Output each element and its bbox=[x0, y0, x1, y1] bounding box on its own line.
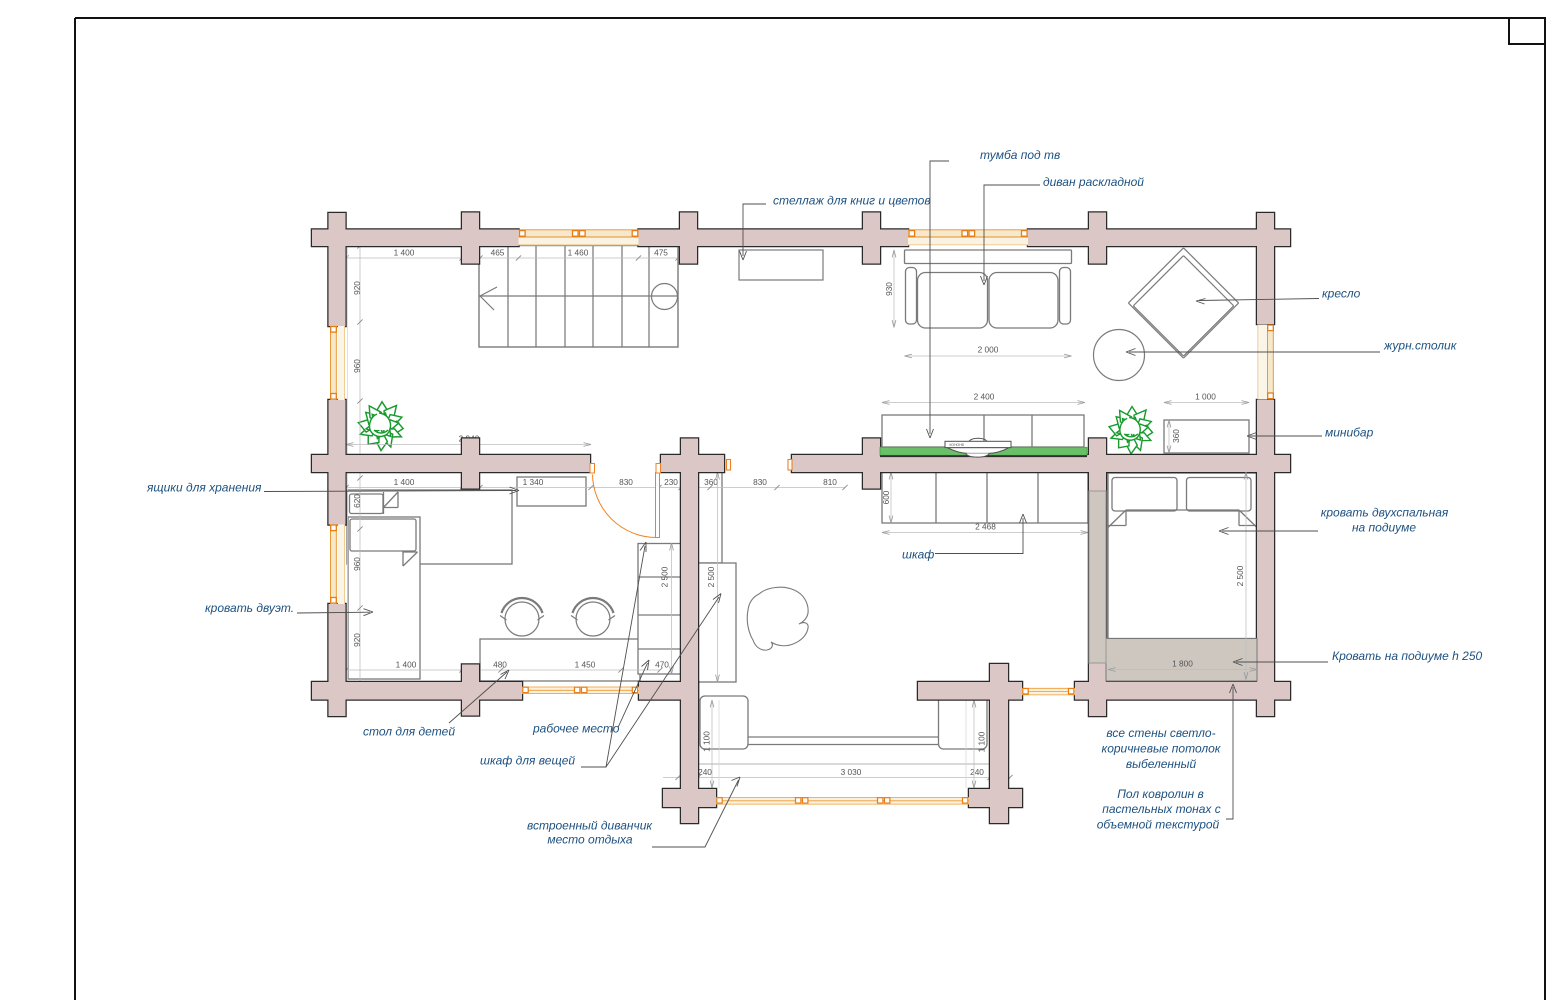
svg-text:830: 830 bbox=[753, 477, 767, 487]
svg-text:1 460: 1 460 bbox=[568, 248, 589, 258]
svg-text:2 000: 2 000 bbox=[978, 345, 999, 355]
svg-text:Кровать на подиуме h 250: Кровать на подиуме h 250 bbox=[1332, 649, 1483, 663]
svg-text:1 000: 1 000 bbox=[1195, 392, 1216, 402]
svg-text:360: 360 bbox=[1171, 429, 1181, 443]
svg-text:920: 920 bbox=[352, 633, 362, 647]
svg-text:шкаф: шкаф bbox=[902, 548, 934, 562]
svg-text:230: 230 bbox=[664, 477, 678, 487]
svg-text:Пол ковролин в: Пол ковролин в bbox=[1117, 787, 1204, 801]
svg-text:240: 240 bbox=[970, 767, 984, 777]
svg-text:920: 920 bbox=[352, 281, 362, 295]
svg-text:1 400: 1 400 bbox=[394, 248, 415, 258]
svg-text:465: 465 bbox=[491, 248, 505, 258]
svg-text:2 500: 2 500 bbox=[1235, 565, 1245, 586]
svg-text:1 100: 1 100 bbox=[977, 731, 987, 752]
svg-text:475: 475 bbox=[654, 248, 668, 258]
svg-text:1 450: 1 450 bbox=[575, 660, 596, 670]
svg-text:1 100: 1 100 bbox=[702, 731, 712, 752]
svg-text:выбеленный: выбеленный bbox=[1126, 757, 1197, 771]
svg-text:шкаф для вещей: шкаф для вещей bbox=[480, 754, 575, 768]
svg-text:1 800: 1 800 bbox=[1172, 659, 1193, 669]
svg-text:встроенный диванчик: встроенный диванчик bbox=[527, 819, 653, 833]
svg-text:рабочее место: рабочее место bbox=[532, 722, 620, 736]
svg-text:кровать двухспальная: кровать двухспальная bbox=[1321, 506, 1449, 520]
svg-text:810: 810 bbox=[823, 477, 837, 487]
svg-text:2 468: 2 468 bbox=[975, 522, 996, 532]
svg-text:журн.столик: журн.столик bbox=[1383, 339, 1458, 353]
svg-text:на подиуме: на подиуме bbox=[1352, 521, 1416, 535]
svg-text:стеллаж для книг и цветов: стеллаж для книг и цветов bbox=[773, 194, 931, 208]
svg-text:2 400: 2 400 bbox=[974, 392, 995, 402]
svg-text:1 340: 1 340 bbox=[523, 477, 544, 487]
svg-text:все стены светло-: все стены светло- bbox=[1106, 726, 1215, 740]
svg-text:960: 960 bbox=[352, 557, 362, 571]
svg-text:1 400: 1 400 bbox=[394, 477, 415, 487]
svg-text:кресло: кресло bbox=[1322, 287, 1361, 301]
svg-text:пастельных тонах с: пастельных тонах с bbox=[1102, 802, 1221, 816]
svg-text:место отдыха: место отдыха bbox=[547, 833, 632, 847]
svg-text:600: 600 bbox=[881, 490, 891, 504]
svg-text:стол для детей: стол для детей bbox=[363, 725, 455, 739]
svg-text:480: 480 bbox=[493, 660, 507, 670]
svg-text:ящики для хранения: ящики для хранения bbox=[146, 481, 262, 495]
svg-text:2 500: 2 500 bbox=[706, 566, 716, 587]
svg-text:КОНОНВ: КОНОНВ bbox=[950, 443, 965, 447]
svg-text:коричневые потолок: коричневые потолок bbox=[1102, 742, 1222, 756]
svg-text:диван раскладной: диван раскладной bbox=[1043, 175, 1144, 189]
svg-text:3 030: 3 030 bbox=[841, 767, 862, 777]
svg-text:470: 470 bbox=[655, 660, 669, 670]
svg-text:2 500: 2 500 bbox=[660, 566, 670, 587]
svg-text:минибар: минибар bbox=[1325, 426, 1374, 440]
svg-text:кровать двуэт.: кровать двуэт. bbox=[205, 601, 294, 615]
svg-text:тумба под тв: тумба под тв bbox=[980, 148, 1060, 162]
svg-text:930: 930 bbox=[884, 282, 894, 296]
svg-text:830: 830 bbox=[619, 477, 633, 487]
svg-text:960: 960 bbox=[352, 359, 362, 373]
svg-text:объемной текстурой: объемной текстурой bbox=[1097, 818, 1220, 832]
svg-text:620: 620 bbox=[352, 494, 362, 508]
svg-text:1 400: 1 400 bbox=[396, 660, 417, 670]
svg-text:240: 240 bbox=[698, 767, 712, 777]
